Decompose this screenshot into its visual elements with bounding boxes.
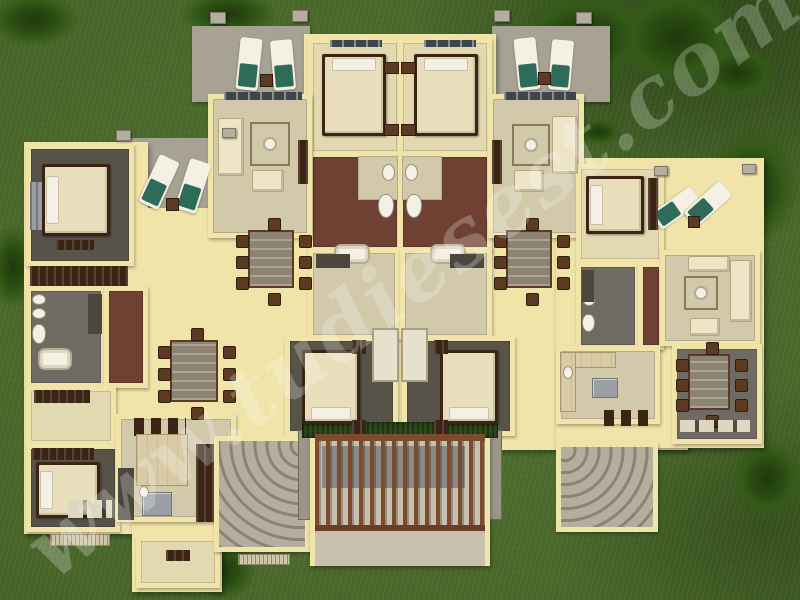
dining-right-outer (688, 354, 730, 410)
vanity-core-right (450, 254, 484, 268)
dining-chair (191, 328, 204, 341)
pillar-cap-4 (576, 12, 592, 24)
bed-mid-right (440, 350, 498, 424)
speaker-mid-right-2 (434, 420, 448, 434)
room-utility-left (136, 536, 220, 588)
bed-top-left (322, 54, 386, 136)
dining-chair (223, 346, 236, 359)
loveseat-living-right (688, 256, 730, 272)
dining-chair (191, 407, 204, 420)
dining-chair (557, 277, 570, 290)
window-living-top-left (224, 92, 302, 100)
tv-unit-tl (298, 140, 308, 184)
shower-right (401, 328, 428, 382)
nightstand-top-right-2 (401, 124, 416, 136)
room-dress-left (104, 286, 148, 388)
tv-unit-bedroom-right (648, 178, 658, 230)
dining-chair (676, 359, 689, 372)
bed-master-left (42, 164, 110, 236)
pillar-cap-8 (742, 164, 756, 174)
dining-upper-right (506, 230, 552, 288)
pillar-cap-7 (654, 166, 668, 176)
wardrobe-bedroom-bottom-left (32, 448, 94, 460)
bush-bottom-right (730, 438, 800, 520)
dining-chair (676, 379, 689, 392)
dining-chair (735, 359, 748, 372)
bed-top-right (414, 54, 478, 136)
tree-top-left (0, 0, 80, 47)
dining-chair (158, 390, 171, 403)
dining-chair (268, 293, 281, 306)
dining-chair (706, 342, 719, 355)
window-bed-top-left (330, 40, 382, 47)
dining-chair (526, 293, 539, 306)
dining-chair (735, 399, 748, 412)
sink-bath-left-1 (32, 294, 46, 305)
dining-chair (494, 256, 507, 269)
dining-chair (223, 390, 236, 403)
dining-chair (158, 368, 171, 381)
dining-upper-left (248, 230, 294, 288)
stairs-left (214, 436, 310, 552)
shower-left (372, 328, 399, 382)
dining-chair (236, 235, 249, 248)
dining-chair (676, 399, 689, 412)
toilet-bath-left (32, 324, 46, 344)
sidetable-tl (260, 74, 273, 87)
lounger-tl-2 (270, 39, 296, 91)
tree-palm-3 (695, 44, 780, 102)
sofa-living-tr (552, 116, 578, 174)
wardrobe-hall-left (34, 390, 90, 403)
tv-unit-tr (492, 140, 502, 184)
dining-chair (494, 277, 507, 290)
pantry-left (196, 444, 214, 522)
bed-right (586, 176, 644, 234)
closet-row-left (30, 266, 128, 286)
dining-chair (526, 218, 539, 231)
dining-chair (299, 235, 312, 248)
planter-right (488, 430, 502, 520)
dresser-master-left (30, 182, 42, 230)
pillar-cap-5 (116, 130, 131, 141)
coffee-table-tr (512, 124, 550, 166)
toilet-bath-top-right (406, 194, 422, 218)
sidetable-left (166, 198, 179, 211)
dining-chair (236, 256, 249, 269)
sink-bath-top-left (382, 164, 395, 181)
dining-chair (557, 256, 570, 269)
doormat-stairs-left (238, 554, 290, 565)
dining-lower-left (170, 340, 218, 402)
window-living-top-right (504, 92, 576, 100)
dining-chair (223, 368, 236, 381)
speaker-mid-left-2 (352, 420, 366, 434)
dining-chair (494, 235, 507, 248)
dining-chair (735, 379, 748, 392)
pillar-cap-6 (222, 128, 236, 138)
kitchen-counter-right-2 (560, 352, 576, 412)
coffee-table-tl (250, 122, 290, 166)
pergola (310, 434, 490, 566)
doormat-bedroom-bottom-left (50, 534, 110, 546)
floor-plan-scene: www.tudiesest.com (0, 0, 800, 600)
toilet-bath-top-left (378, 194, 394, 218)
armchair-tl (252, 170, 284, 192)
nightstand-top-left-2 (384, 124, 399, 136)
dining-chair (557, 235, 570, 248)
kitchen-sink-left (139, 486, 149, 498)
dining-chair (268, 218, 281, 231)
sink-bath-top-right (405, 164, 418, 181)
stairs-right (556, 442, 658, 532)
bathtub-left (38, 348, 72, 370)
appliance-right (592, 378, 618, 398)
lounger-tr-2 (548, 39, 574, 91)
window-bed-top-right (424, 40, 476, 47)
nightstand-top-left-1 (384, 62, 399, 74)
pillar-cap-3 (494, 10, 510, 22)
coffee-table-right (684, 276, 718, 310)
bench-master-left (56, 240, 94, 250)
dining-chair (299, 277, 312, 290)
speaker-mid-right-1 (434, 340, 448, 354)
sidetable-right (688, 216, 700, 228)
bar-stools-right (604, 410, 652, 426)
kitchen-counter-left (136, 434, 188, 486)
armchair-tr (514, 170, 544, 192)
dining-chair (299, 256, 312, 269)
vanity-bath-left (88, 294, 102, 334)
doormats-dining-right (680, 420, 750, 432)
pillar-cap-1 (210, 12, 226, 24)
pillar-cap-2 (292, 10, 308, 22)
nightstand-top-right-1 (401, 62, 416, 74)
toilet-bath-right (582, 314, 595, 332)
rug-bedroom-bottom-left (68, 500, 112, 518)
dining-chair (158, 346, 171, 359)
speaker-mid-left-1 (352, 340, 366, 354)
sofa-living-tl (218, 118, 244, 176)
sink-bath-left-2 (32, 308, 46, 319)
armchair-right (690, 318, 720, 336)
sofa-living-right (730, 260, 752, 322)
utility-item-left (166, 550, 190, 561)
counter-dark-left (118, 468, 134, 520)
vanity-core-left (316, 254, 350, 268)
bed-mid-left (302, 350, 360, 424)
sidetable-tr (538, 72, 551, 85)
kitchen-sink-right (563, 366, 573, 379)
vanity-bath-right (582, 270, 594, 302)
dining-chair (236, 277, 249, 290)
